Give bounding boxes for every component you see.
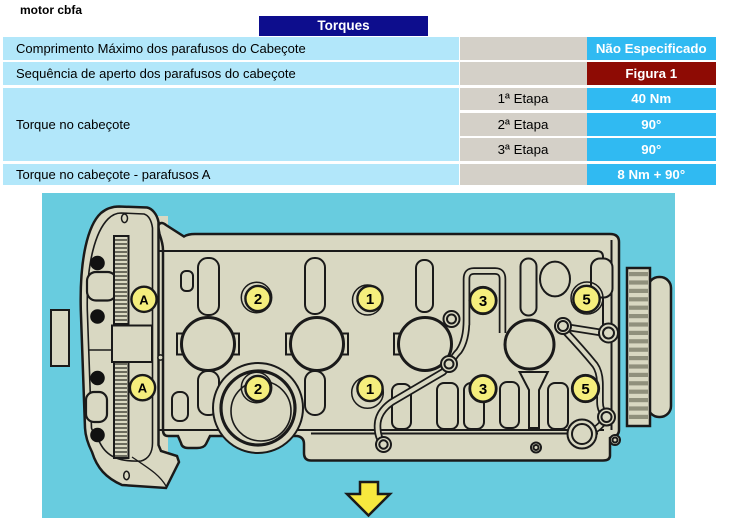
svg-text:1: 1: [366, 291, 374, 308]
svg-text:5: 5: [582, 292, 590, 309]
svg-text:A: A: [139, 292, 149, 307]
svg-text:3: 3: [479, 293, 487, 310]
svg-text:A: A: [138, 381, 148, 396]
svg-text:3: 3: [479, 381, 487, 398]
svg-text:2: 2: [254, 291, 262, 308]
svg-text:5: 5: [581, 381, 589, 398]
svg-text:1: 1: [366, 381, 374, 398]
svg-text:2: 2: [254, 381, 262, 398]
